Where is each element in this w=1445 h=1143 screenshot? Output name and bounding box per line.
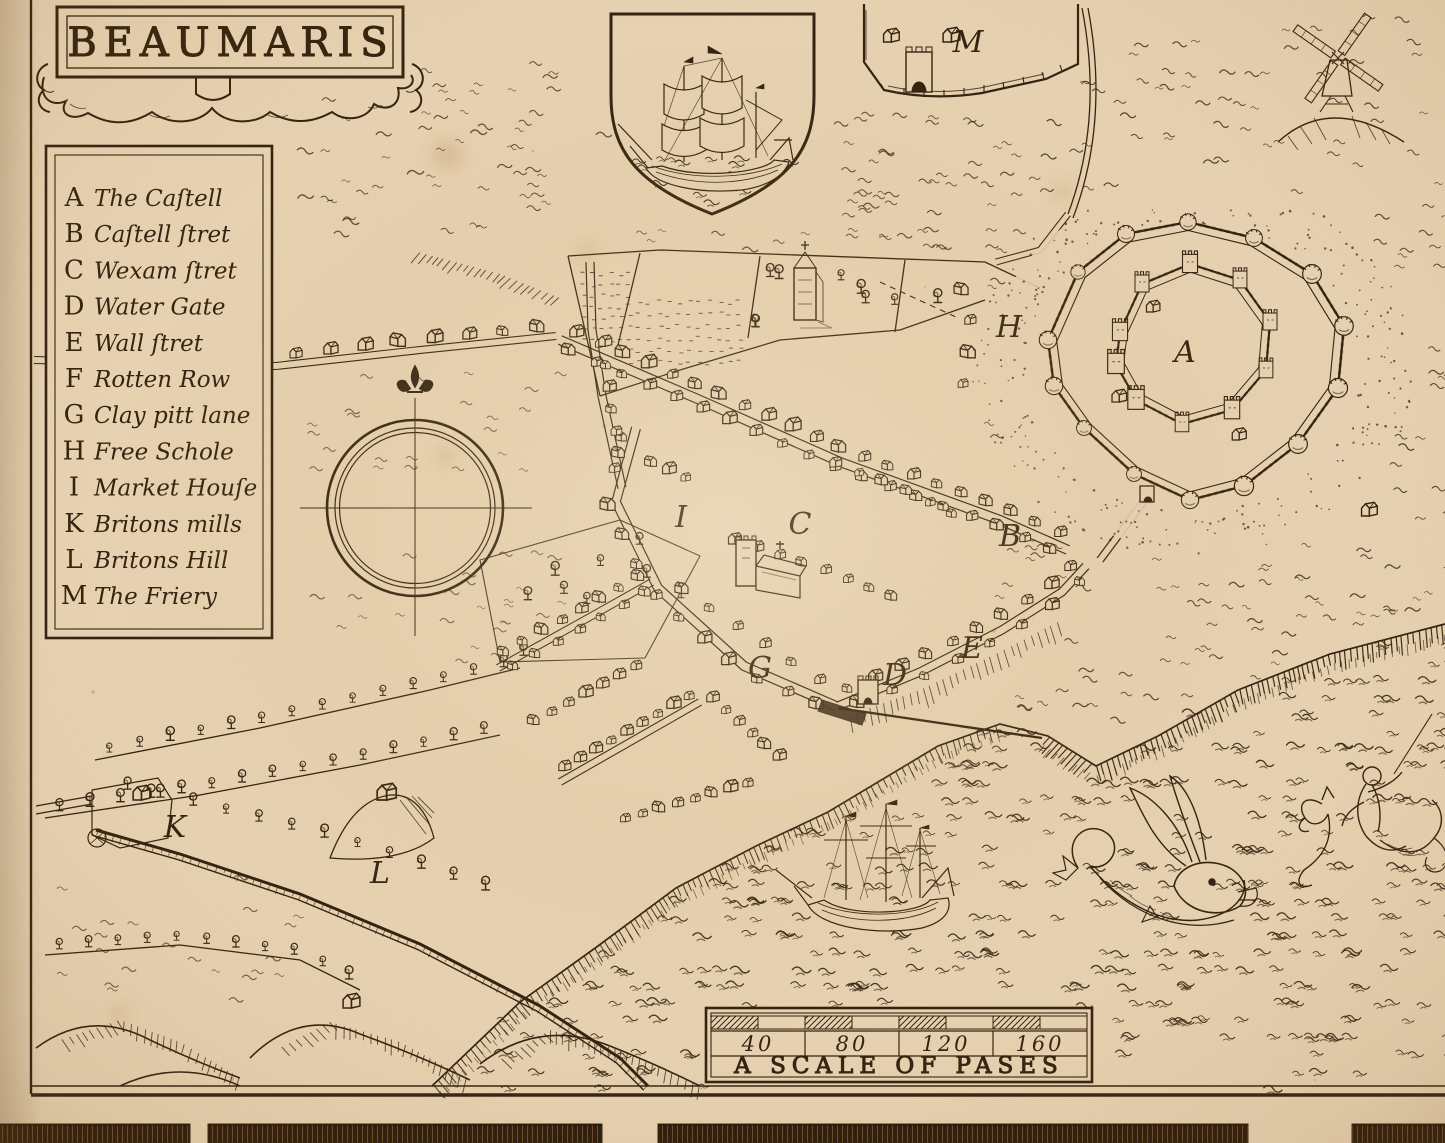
antique-map-beaumaris: BEAUMARIS AThe CaſtellBCaſtell ſtretCWex… (0, 0, 1445, 1143)
paper-grain (0, 0, 1445, 1143)
map-canvas: BEAUMARIS AThe CaſtellBCaſtell ſtretCWex… (0, 0, 1445, 1143)
